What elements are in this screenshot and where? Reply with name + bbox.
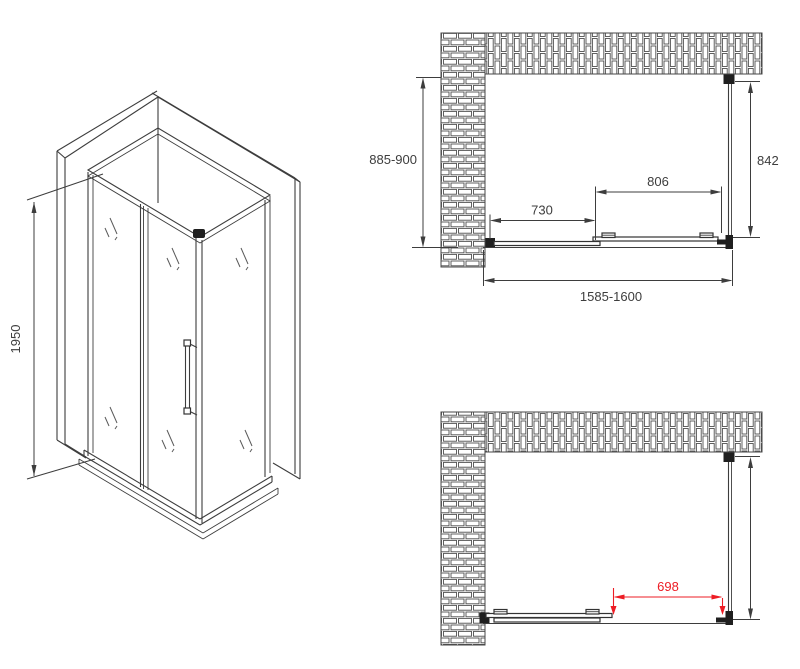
sliding-door-assembly-open xyxy=(480,610,734,626)
plan-view-open: 698 xyxy=(441,412,762,645)
wall-profile-right xyxy=(726,611,734,625)
door-handle xyxy=(184,340,197,415)
door-roller xyxy=(494,610,507,615)
wall-profile-bracket xyxy=(724,453,735,463)
dimension-height: 1950 xyxy=(8,174,103,479)
brick-wall-top xyxy=(485,412,762,452)
dimension-label-total-width: 1585-1600 xyxy=(580,289,642,304)
dimension-label-side-depth: 885-900 xyxy=(369,152,417,167)
sliding-door-assembly xyxy=(483,233,733,249)
dimension-label-height: 1950 xyxy=(8,325,23,354)
dimension-door-width: 806 xyxy=(596,174,722,240)
fixed-glass-panel xyxy=(494,618,600,622)
dimension-label-door-width: 806 xyxy=(647,174,669,189)
wall-profile-bracket xyxy=(724,75,735,85)
door-roller xyxy=(586,610,599,615)
dimension-glass-depth: 842 xyxy=(733,82,779,238)
door-roller xyxy=(700,233,713,238)
plan-view-closed: 885-900 842 806 730 xyxy=(369,33,778,304)
dimension-label-glass-depth: 842 xyxy=(757,153,779,168)
dimension-label-fixed-width: 730 xyxy=(531,203,553,218)
dimension-total-width: 1585-1600 xyxy=(484,250,733,304)
technical-drawing-page: 1950 xyxy=(0,0,800,669)
corner-post-cap xyxy=(193,229,205,238)
brick-wall-top xyxy=(485,33,762,74)
dimension-label-opening: 698 xyxy=(657,579,679,594)
shower-enclosure xyxy=(79,128,278,539)
dimension-fixed-width: 730 xyxy=(490,203,596,240)
brick-wall-left xyxy=(441,33,485,267)
isometric-view: 1950 xyxy=(8,91,300,539)
side-glass-panel xyxy=(724,75,735,244)
dimension-door-opening: 698 xyxy=(611,579,726,615)
technical-drawing-canvas: 1950 xyxy=(0,0,800,669)
fixed-glass-panel xyxy=(494,242,600,246)
glass-reflection-marks xyxy=(105,218,252,452)
brick-wall-left xyxy=(441,412,485,645)
side-glass-panel xyxy=(724,453,735,620)
door-roller xyxy=(602,233,615,238)
wall-profile-right xyxy=(726,235,734,249)
dimension-right-unlabeled xyxy=(733,457,760,620)
